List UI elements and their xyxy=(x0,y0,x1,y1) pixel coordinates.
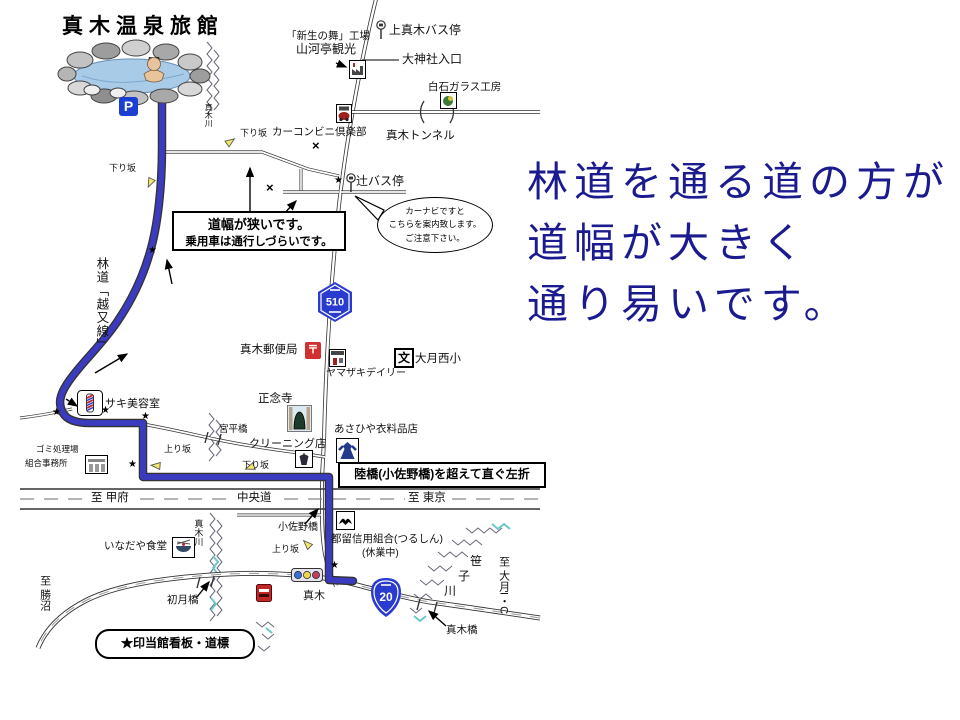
post-office-icon: 〒 xyxy=(305,342,321,359)
label-gomi-line1: ゴミ処理場 xyxy=(36,445,79,455)
label-factory: 「新生の舞」工場 xyxy=(286,30,370,42)
star-mark: ★ xyxy=(148,245,157,256)
carnavi-line1: カーナビですと xyxy=(378,205,492,218)
glass-studio-icon xyxy=(440,92,457,109)
label-tsurushin: 都留信用組合(つるしん) xyxy=(331,533,443,545)
label-miyadaira-bridge: 宮平橋 xyxy=(219,425,248,436)
label-downhill-2: 下り坂 xyxy=(109,163,136,173)
label-inadaya: いなだや食堂 xyxy=(104,540,167,552)
label-otsuki-nishi-school: 大月西小 xyxy=(415,353,461,366)
label-yamazaki-daily: ヤマザキデイリー xyxy=(326,368,406,380)
label-chuo-expressway: 中央道 xyxy=(234,492,275,505)
label-sasago-3: 川 xyxy=(444,585,456,599)
label-to-katsunuma: 至 勝沼 xyxy=(38,575,51,611)
narrow-warning-line1: 道幅が狭いです。 xyxy=(174,214,344,233)
label-saki-salon: サキ美容室 xyxy=(105,398,160,411)
school-icon: 文 xyxy=(394,348,414,368)
star-mark: ★ xyxy=(141,411,150,422)
legend-oval: ★印当館看板・道標 xyxy=(95,629,255,659)
bus-stop-icon xyxy=(345,173,357,193)
narrow-road-warning-box: 道幅が狭いです。 乗用車は通行しづらいです。 xyxy=(172,211,346,251)
star-mark: ★ xyxy=(52,407,61,418)
star-mark: ★ xyxy=(330,560,339,571)
overpass-instruction-box: 陸橋(小佐野橋)を超えて直ぐ左折 xyxy=(338,462,546,488)
onsen-illustration xyxy=(58,40,210,105)
label-tsuji-bus-stop: 辻バス停 xyxy=(356,175,404,189)
route-510-shield: 510 xyxy=(316,281,354,323)
note-line-3: 通り易いです。 xyxy=(527,274,960,335)
svg-text:510: 510 xyxy=(326,297,344,309)
label-maki-tunnel: 真木トンネル xyxy=(386,130,455,143)
slide: 林道を通る道の方が 道幅が大きく 通り易いです。 真木温泉旅館 道幅が狭いです。… xyxy=(0,0,960,720)
label-shiraishi-glass: 白石ガラス工房 xyxy=(428,81,501,93)
cleaning-shop-icon xyxy=(295,450,313,468)
factory-icon xyxy=(349,60,366,79)
label-downhill-1: 下り坂 xyxy=(240,128,267,138)
label-uphill-1: 上り坂 xyxy=(164,444,191,454)
label-to-otsuki-ic: 至 大月I・C xyxy=(497,556,510,614)
temple-icon xyxy=(287,405,312,432)
route-20-shield: 20 xyxy=(369,577,403,619)
label-cleaning-shop: クリーニング店 xyxy=(249,438,326,451)
parking-icon: P xyxy=(119,97,138,116)
hydrant-sign-icon xyxy=(256,584,272,602)
asahiya-clothing-icon xyxy=(336,438,359,463)
carnavi-line3: ご注意下さい。 xyxy=(378,232,492,245)
label-kamimaki-bus-stop: 上真木バス停 xyxy=(389,24,461,38)
narrow-warning-line2: 乗用車は通行しづらいです。 xyxy=(174,233,344,249)
bus-stop-icon xyxy=(375,20,387,40)
tsurushin-bank-icon xyxy=(336,511,355,530)
label-daijinja-entrance: 大神社入口 xyxy=(402,53,462,67)
label-maki-river-top: 真木川 xyxy=(204,103,213,127)
river-maki-lower xyxy=(210,513,222,621)
star-mark: ★ xyxy=(334,175,343,186)
inn-title: 真木温泉旅館 xyxy=(62,10,224,40)
label-rindo-koshimata: 林道「越又線」 xyxy=(94,257,108,352)
traffic-light-icon xyxy=(291,568,323,582)
carnavi-line2: こちらを案内致します。 xyxy=(378,218,492,231)
label-to-kofu: 至 甲府 xyxy=(88,492,132,505)
carnavi-note-bubble: カーナビですと こちらを案内致します。 ご注意下さい。 xyxy=(377,197,493,253)
label-maki-post-office: 真木郵便局 xyxy=(240,344,298,357)
star-mark: ★ xyxy=(128,459,137,470)
cross-mark: × xyxy=(266,180,274,195)
svg-text:20: 20 xyxy=(379,590,393,604)
label-tsurushin-closed: (休業中) xyxy=(362,548,399,560)
label-maki-intersection: 真木 xyxy=(303,590,325,603)
slope-arrows xyxy=(145,136,312,550)
waste-office-icon xyxy=(85,455,108,474)
label-gomi-line2: 組合事務所 xyxy=(25,459,68,469)
label-sasago-1: 笹 xyxy=(470,555,482,569)
inadaya-restaurant-icon xyxy=(172,537,195,558)
label-downhill-3: 下り坂 xyxy=(242,460,269,470)
note-line-2: 道幅が大きく xyxy=(527,213,960,274)
yamazaki-store-icon xyxy=(329,349,346,367)
map-artwork xyxy=(0,0,960,720)
label-car-convenience-club: カーコンビニ倶楽部 xyxy=(272,126,367,138)
label-asahiya: あさひや衣料品店 xyxy=(334,423,418,435)
label-to-tokyo: 至 東京 xyxy=(405,492,449,505)
label-kosano-bridge: 小佐野橋 xyxy=(278,522,318,534)
route-advice-note: 林道を通る道の方が 道幅が大きく 通り易いです。 xyxy=(527,152,960,335)
car-convenience-icon xyxy=(336,104,352,123)
note-line-1: 林道を通る道の方が xyxy=(527,152,960,213)
label-uphill-2: 上り坂 xyxy=(272,544,299,554)
label-sangatei: 山河亭観光 xyxy=(296,43,356,57)
label-maki-bridge: 真木橋 xyxy=(446,624,478,636)
cross-mark: × xyxy=(312,138,320,153)
label-sasago-2: 子 xyxy=(458,570,470,584)
saki-salon-icon xyxy=(77,390,103,416)
label-hatsuki-bridge: 初月橋 xyxy=(167,594,199,606)
